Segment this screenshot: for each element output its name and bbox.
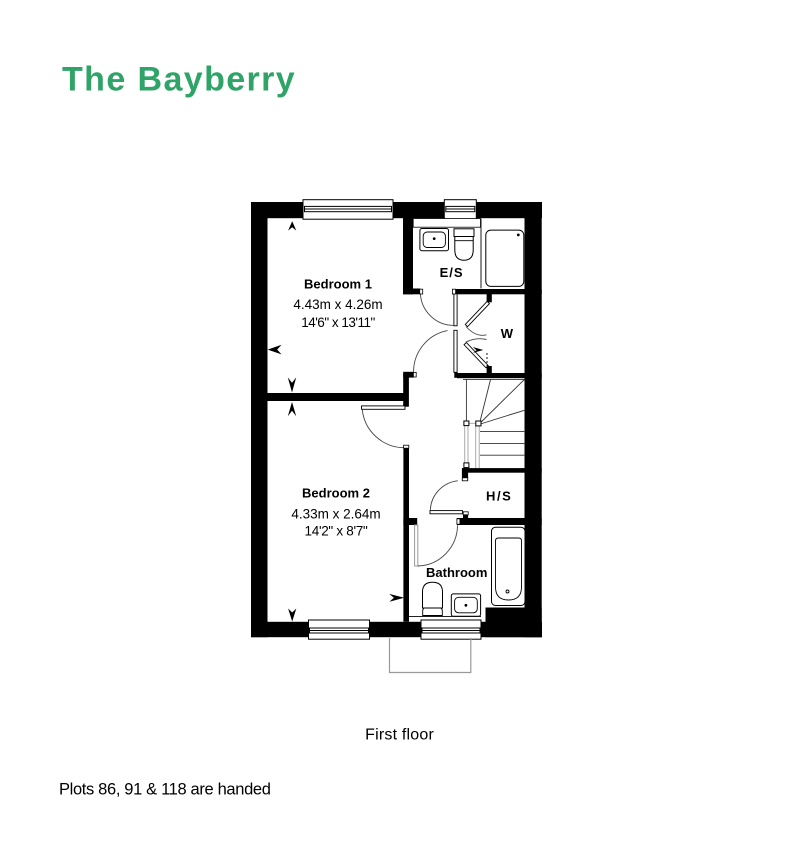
svg-text:E/S: E/S — [440, 265, 464, 280]
svg-text:Bedroom 2: Bedroom 2 — [302, 486, 370, 501]
svg-text:14'2" x 8'7": 14'2" x 8'7" — [305, 524, 368, 539]
svg-text:14'6" x 13'11": 14'6" x 13'11" — [301, 315, 375, 330]
svg-text:Bedroom 1: Bedroom 1 — [304, 277, 372, 292]
svg-text:4.43m x 4.26m: 4.43m x 4.26m — [293, 297, 382, 312]
svg-text:Plots 86, 91 & 118 are handed: Plots 86, 91 & 118 are handed — [59, 780, 271, 798]
svg-text:Bathroom: Bathroom — [426, 565, 487, 580]
svg-text:The Bayberry: The Bayberry — [62, 60, 296, 98]
svg-text:First floor: First floor — [365, 726, 434, 743]
svg-text:4.33m x 2.64m: 4.33m x 2.64m — [291, 506, 380, 521]
svg-text:W: W — [501, 326, 514, 341]
svg-text:H/S: H/S — [486, 489, 512, 504]
